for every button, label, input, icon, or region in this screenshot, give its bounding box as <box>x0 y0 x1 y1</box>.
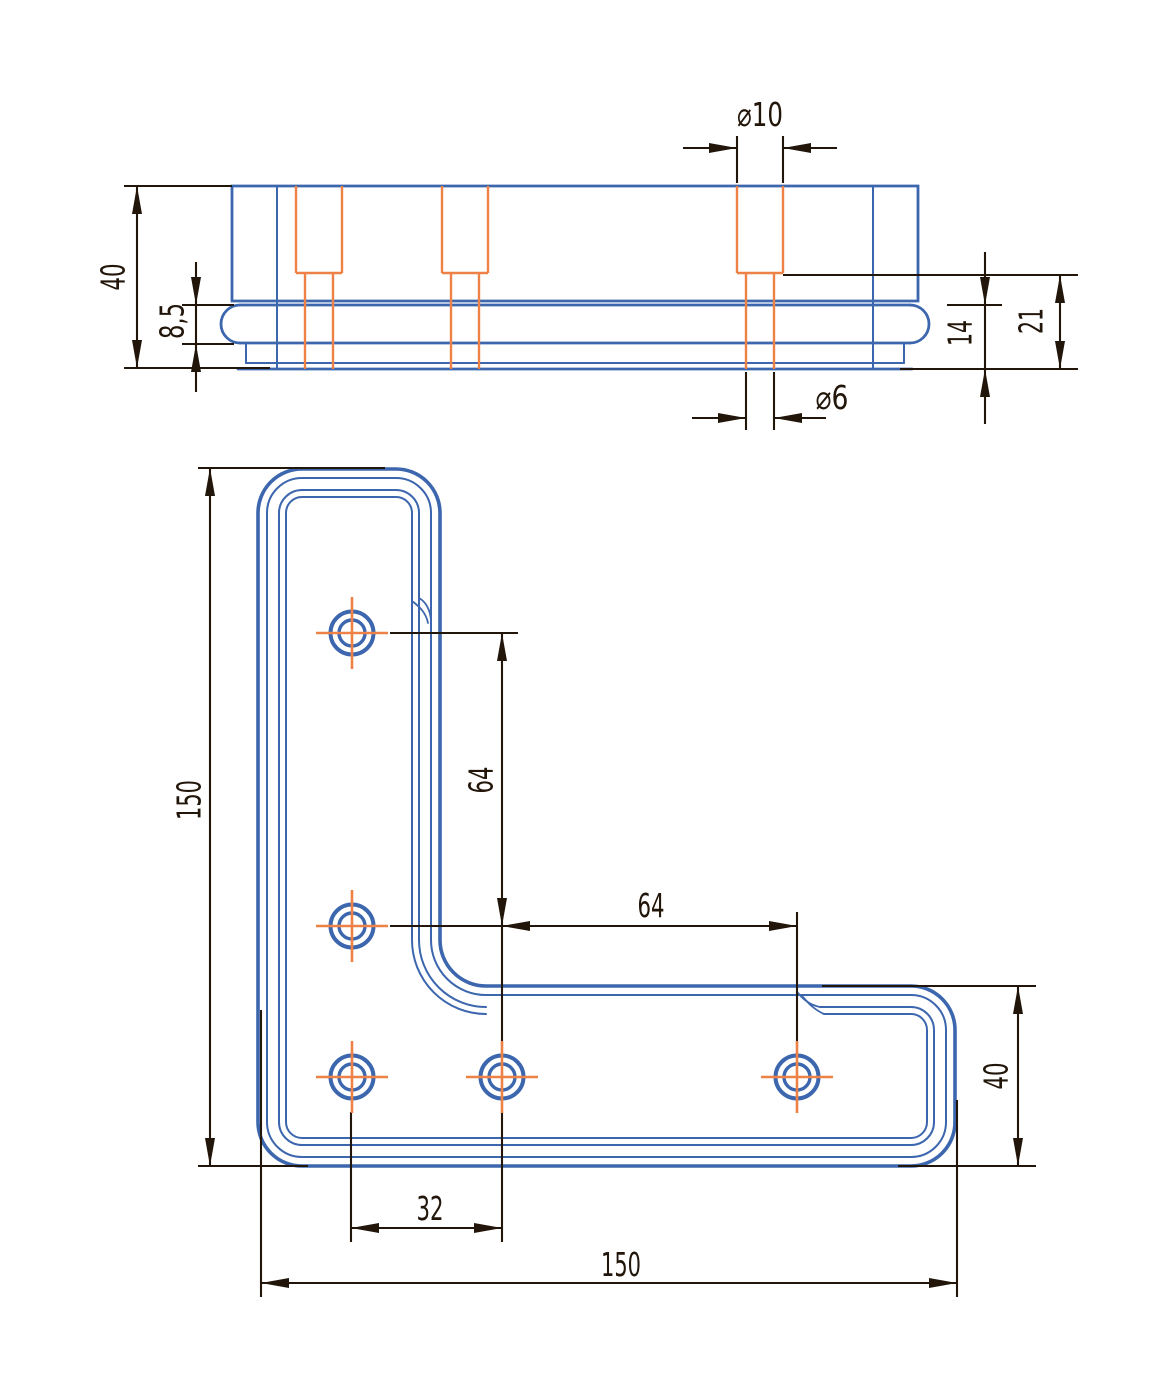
dim-counterbore-remainder: 21 <box>783 275 1078 369</box>
dim-label-counterbore-dia: ⌀10 <box>737 95 783 134</box>
dim-label-flange-thickness: 8,5 <box>153 303 192 339</box>
dim-length-horizontal: 150 <box>261 1010 957 1297</box>
dim-label-through-hole-dia: ⌀6 <box>816 378 849 417</box>
edge-tangent-jogs <box>412 598 824 1014</box>
dim-label-base-height: 14 <box>941 320 980 346</box>
drawing-page: 40 8,5 14 21 <box>0 0 1175 1399</box>
top-view: 150 64 64 32 <box>170 468 1036 1297</box>
dim-counterbore-dia: ⌀10 <box>683 95 837 183</box>
front-part-outline <box>221 186 929 369</box>
dim-label-hole-pitch-bottom: 32 <box>417 1189 444 1228</box>
dim-label-length-vertical: 150 <box>170 780 209 820</box>
dim-label-overall-height: 40 <box>94 264 133 291</box>
dim-label-hole-pitch-horizontal: 64 <box>638 886 665 925</box>
dim-hole-pitch-bottom: 32 <box>351 1112 502 1242</box>
dim-label-hole-pitch-vertical: 64 <box>462 767 501 794</box>
front-view: 40 8,5 14 21 <box>94 95 1078 430</box>
top-part-outline <box>258 469 955 1166</box>
front-hidden-hole-lines <box>296 186 783 369</box>
dim-through-hole-dia: ⌀6 <box>692 372 849 430</box>
bolt-holes <box>331 612 819 1099</box>
dim-hole-pitch-horizontal: 64 <box>502 886 797 1046</box>
dim-label-length-horizontal: 150 <box>601 1245 641 1284</box>
dim-label-arm-width: 40 <box>977 1063 1016 1090</box>
dim-base-height: 14 <box>900 252 1078 424</box>
hole-centerlines <box>316 597 833 1113</box>
dim-overall-height: 40 <box>94 186 270 368</box>
dim-label-counterbore-remainder: 21 <box>1012 308 1051 334</box>
engineering-drawing-canvas: 40 8,5 14 21 <box>0 0 1175 1399</box>
